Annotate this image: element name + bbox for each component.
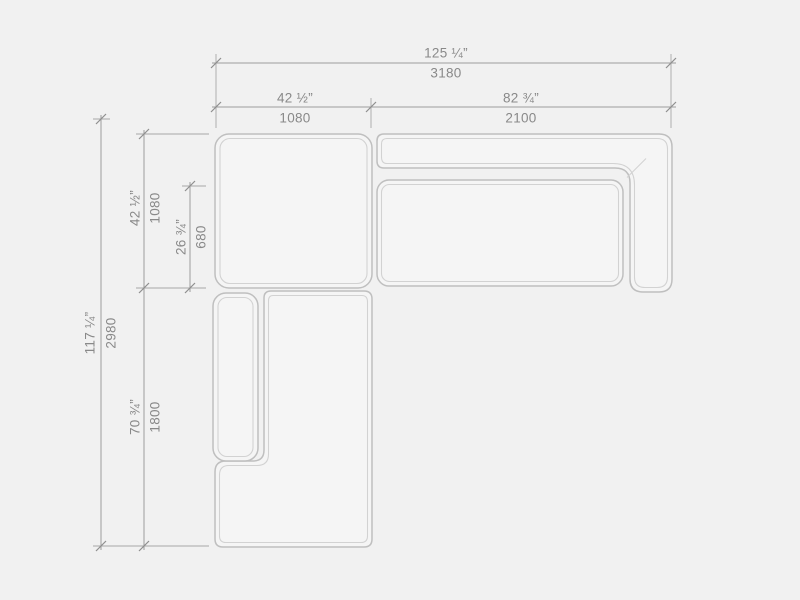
overall-depth-mm-label: 2980 bbox=[104, 317, 118, 348]
overall-width-mm-label: 3180 bbox=[430, 66, 461, 80]
corner-section-depth-inches-label: 42 ½” bbox=[128, 190, 142, 226]
seat-depth-inches-label: 26 ¾” bbox=[174, 219, 188, 255]
right-seat-cushion-outline bbox=[377, 180, 623, 286]
chaise-length-inches-label: 70 ¾” bbox=[128, 399, 142, 435]
chaise-length-mm-label: 1800 bbox=[148, 401, 162, 432]
right-section-width-mm-label: 2100 bbox=[505, 111, 536, 125]
sofa-dimension-diagram: 125 ¼” 3180 42 ½” 1080 82 ¾” 2100 117 ¼”… bbox=[0, 0, 800, 600]
left-section-width-mm-label: 1080 bbox=[279, 111, 310, 125]
chaise-armrest-outline bbox=[213, 293, 258, 461]
overall-width-inches-label: 125 ¼” bbox=[424, 46, 468, 60]
overall-depth-inches-label: 117 ¼” bbox=[83, 312, 97, 355]
seat-depth-mm-label: 680 bbox=[194, 225, 208, 248]
corner-section-depth-mm-label: 1080 bbox=[148, 192, 162, 223]
extension-lines bbox=[93, 54, 671, 546]
corner-seat-outline bbox=[215, 134, 372, 288]
right-section-width-inches-label: 82 ¾” bbox=[503, 91, 539, 105]
left-section-width-inches-label: 42 ½” bbox=[277, 91, 313, 105]
technical-drawing bbox=[0, 0, 800, 600]
dimension-ticks bbox=[96, 58, 676, 551]
sofa-figure bbox=[213, 134, 672, 547]
